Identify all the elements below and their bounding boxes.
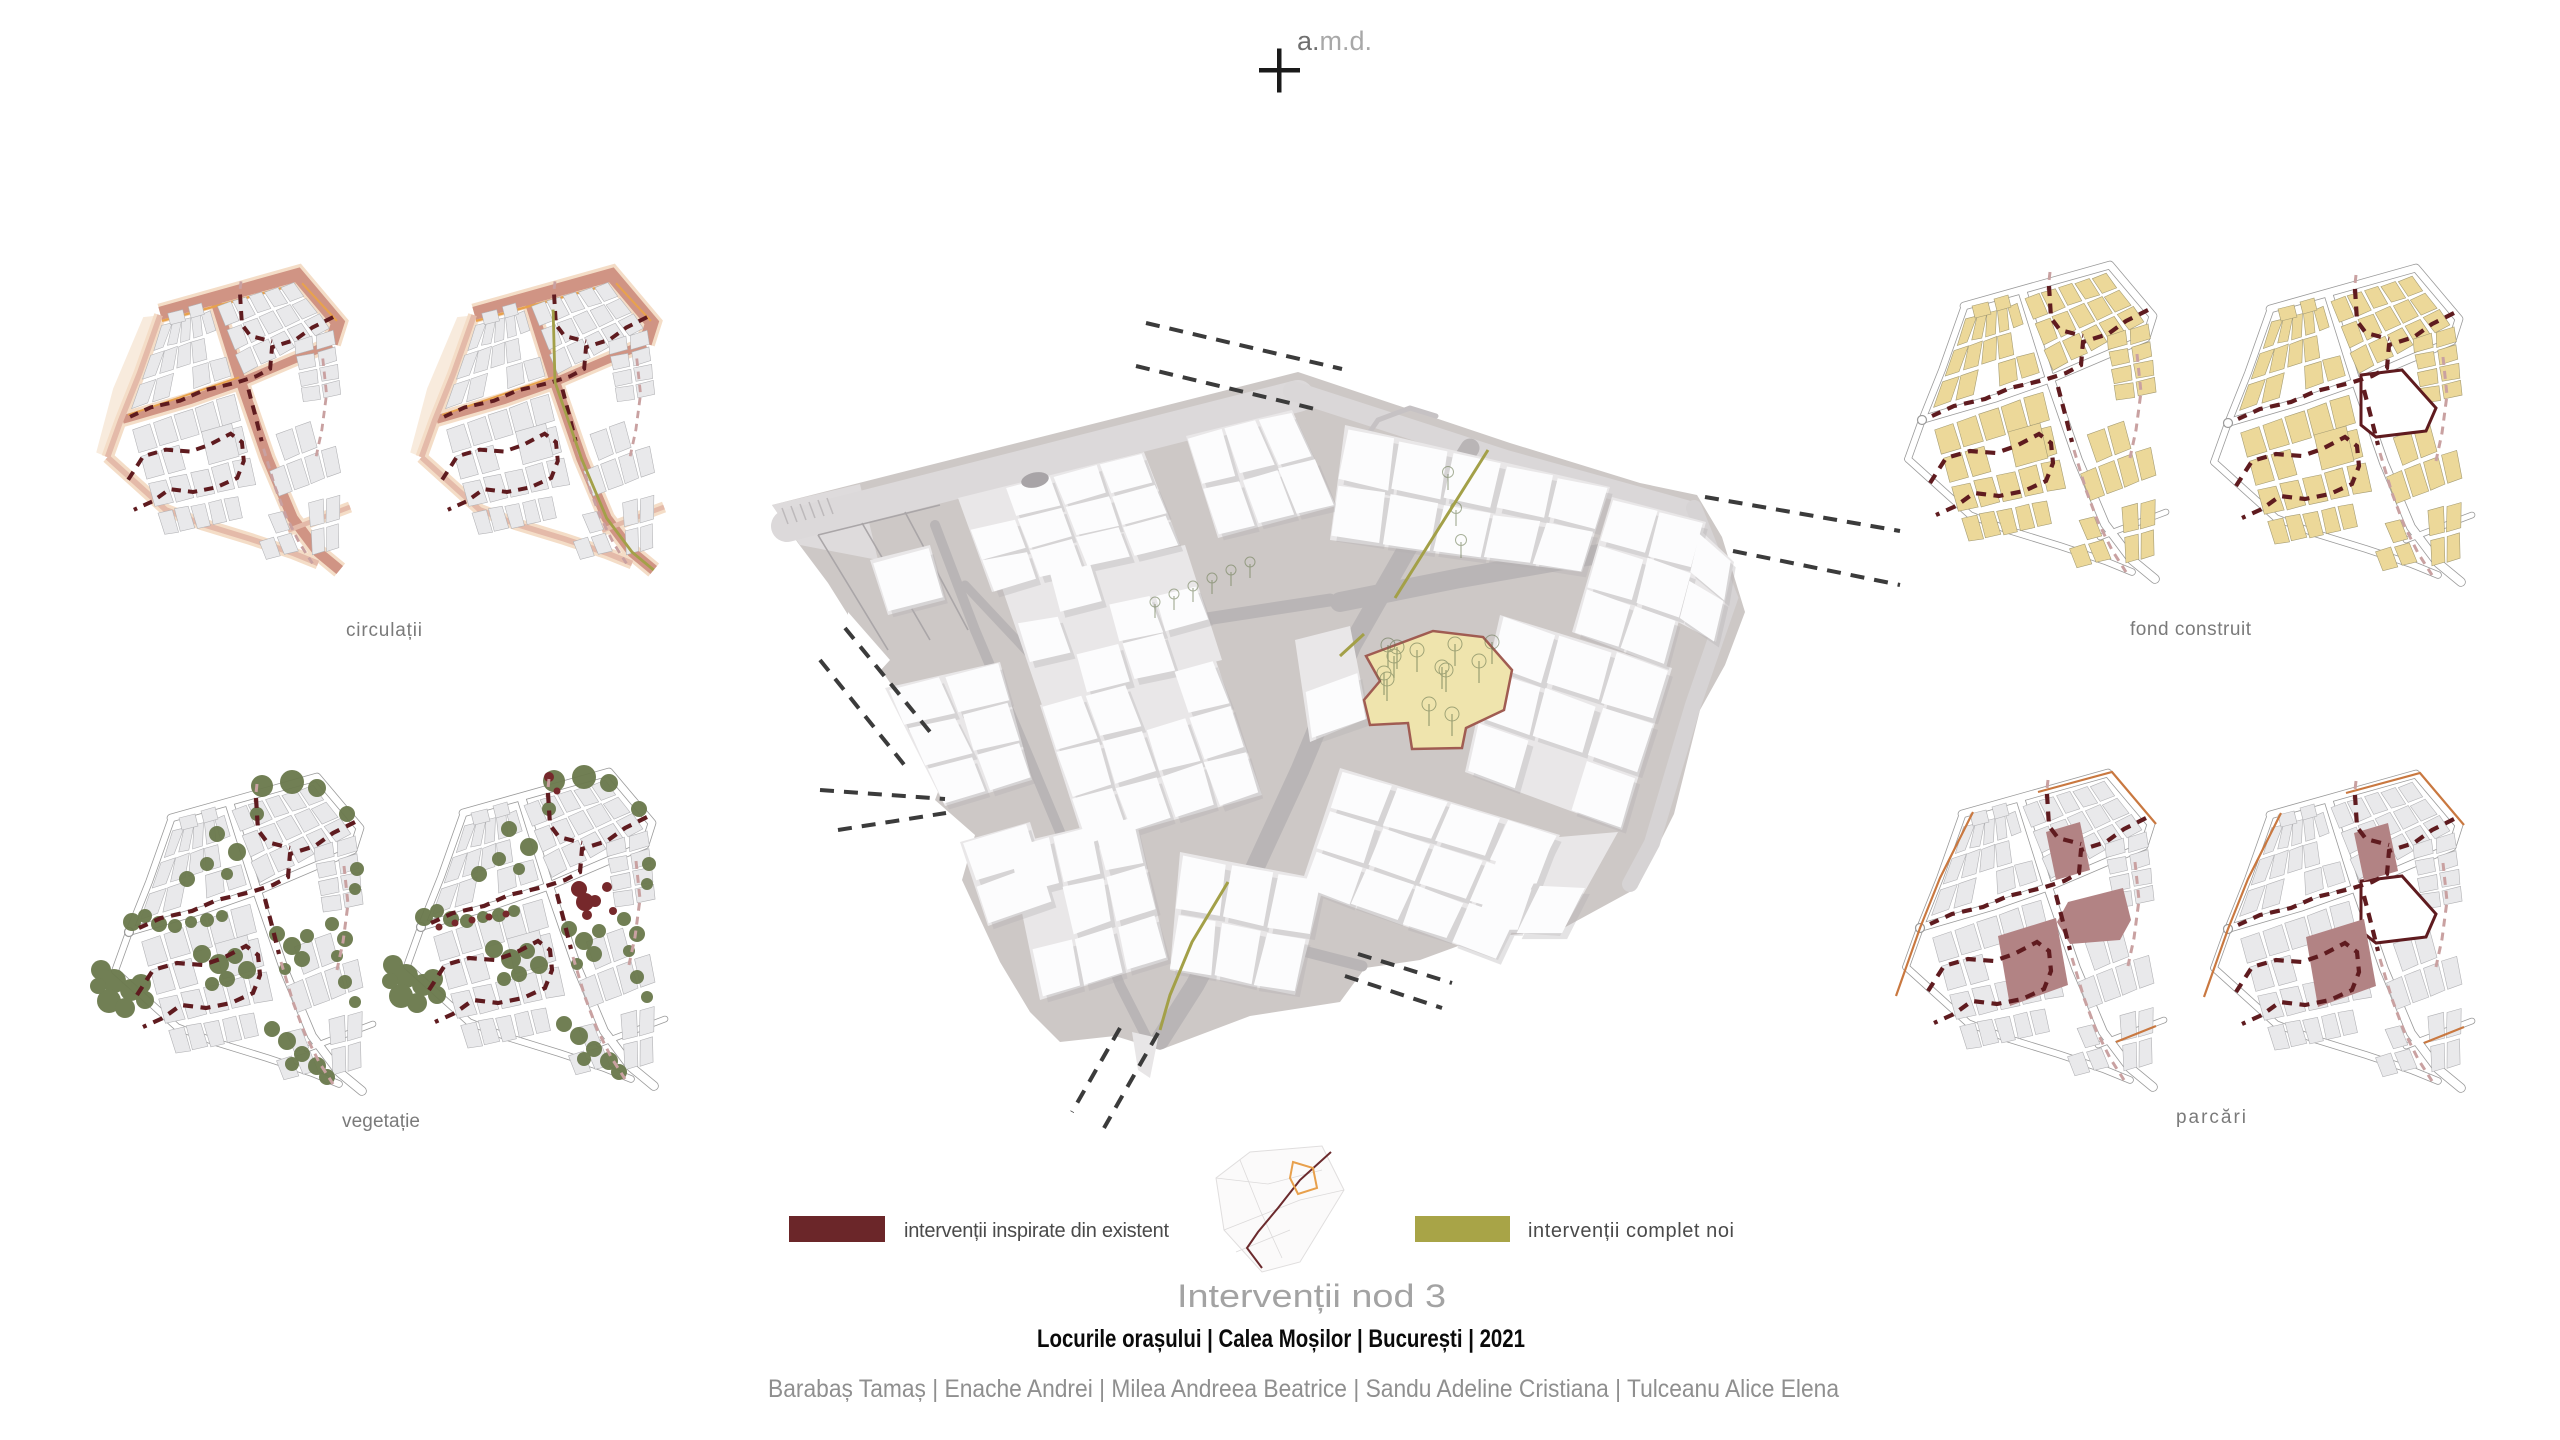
svg-text:intervenții inspirate din exis: intervenții inspirate din existent: [904, 1220, 1169, 1242]
svg-text:intervenții complet noi: intervenții complet noi: [1528, 1220, 1734, 1242]
svg-text:Barabaș Tamaș | Enache Andrei: Barabaș Tamaș | Enache Andrei | Milea An…: [768, 1375, 1839, 1403]
svg-text:vegetație: vegetație: [342, 1111, 420, 1132]
svg-text:circulații: circulații: [346, 620, 422, 641]
svg-text:parcări: parcări: [2176, 1107, 2246, 1128]
svg-text:fond construit: fond construit: [2130, 619, 2252, 640]
svg-text:Locurile orașului | Calea Moși: Locurile orașului | Calea Moșilor | Bucu…: [1037, 1325, 1525, 1353]
svg-text:Intervenții nod 3: Intervenții nod 3: [1177, 1278, 1446, 1314]
svg-text:a.m.d.: a.m.d.: [1297, 26, 1372, 56]
